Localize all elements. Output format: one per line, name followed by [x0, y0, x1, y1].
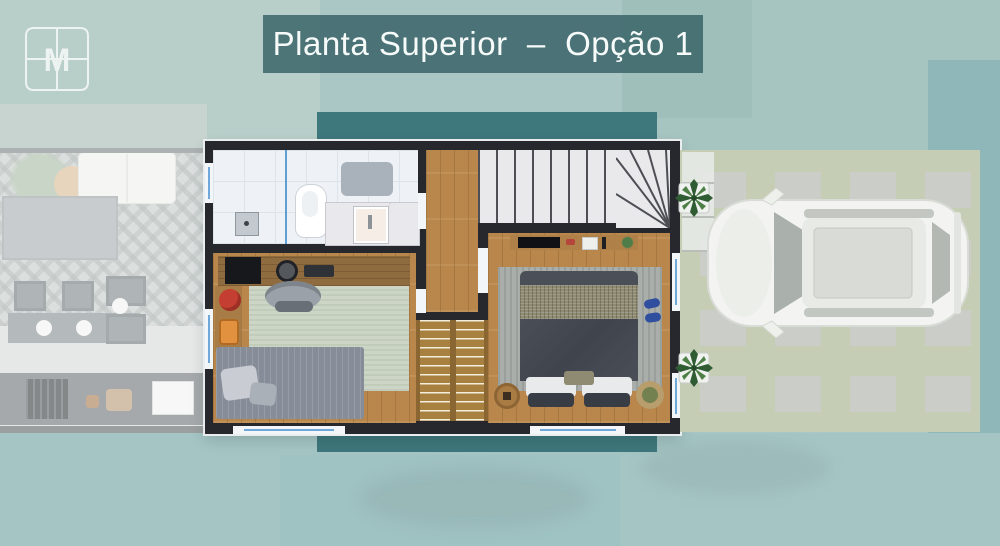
accent-cushion: [564, 371, 594, 385]
upper-floor-plan: [205, 141, 680, 434]
brand-logo: M: [12, 14, 102, 104]
office-bedroom: [213, 253, 416, 423]
decor-tray: [582, 237, 598, 250]
desk: [218, 256, 410, 286]
staircase-winder: [616, 150, 670, 228]
double-bed: [520, 271, 638, 409]
door-office: [416, 289, 426, 313]
plant-small: [620, 235, 635, 250]
tv: [518, 237, 560, 248]
dark-pillow: [584, 393, 630, 407]
paver: [925, 376, 971, 412]
window-bedroom-right-upper: [672, 253, 680, 311]
leaf-shadow: [640, 440, 830, 495]
pillow: [249, 382, 277, 407]
master-bedroom: [488, 233, 670, 423]
car-top-view: [702, 178, 974, 348]
door-master-bedroom: [478, 248, 488, 293]
fade-overlay: [0, 148, 207, 433]
single-bed: [216, 347, 364, 419]
window-bedroom-bottom: [530, 426, 625, 434]
orange-stool: [219, 319, 239, 345]
paver: [775, 376, 821, 412]
void-wood-slats: [416, 320, 454, 421]
nightstand-round: [494, 383, 520, 409]
staircase: [478, 150, 616, 223]
tv-console: [510, 235, 638, 250]
window-office-bottom: [233, 426, 345, 434]
decor-bottle: [602, 237, 606, 249]
background-sidewalk-left: [0, 104, 207, 148]
chair-back: [275, 301, 313, 312]
round-rug: [636, 381, 664, 409]
red-pouf: [219, 289, 241, 311]
leaf-shadow: [360, 468, 590, 528]
dark-pillow: [528, 393, 574, 407]
shower-glass-partition: [285, 150, 287, 244]
paver: [850, 376, 896, 412]
bath-mat: [341, 162, 393, 196]
sink: [354, 207, 388, 243]
void-wood-slats: [452, 320, 488, 421]
vanity-counter: [325, 202, 420, 246]
plant: [674, 348, 714, 388]
hallway: [426, 150, 478, 312]
floor-plan-page: M Planta Superior – Opção 1: [0, 0, 1000, 546]
decor-red: [566, 239, 575, 245]
monitor: [225, 257, 261, 284]
bathroom: [213, 150, 418, 244]
shower-drain: [235, 212, 259, 236]
driveway: [680, 150, 980, 432]
desk-mic: [276, 260, 298, 282]
toilet: [295, 184, 327, 238]
keyboard: [304, 265, 334, 277]
ground-floor-faded: [0, 148, 207, 433]
woven-blanket: [520, 285, 638, 319]
page-title: Planta Superior – Opção 1: [273, 25, 694, 63]
window-office-left: [205, 309, 213, 369]
door-bathroom: [418, 193, 426, 229]
title-banner: Planta Superior – Opção 1: [263, 15, 703, 73]
logo-letter: M: [44, 42, 71, 78]
window-bathroom-left: [205, 163, 213, 203]
